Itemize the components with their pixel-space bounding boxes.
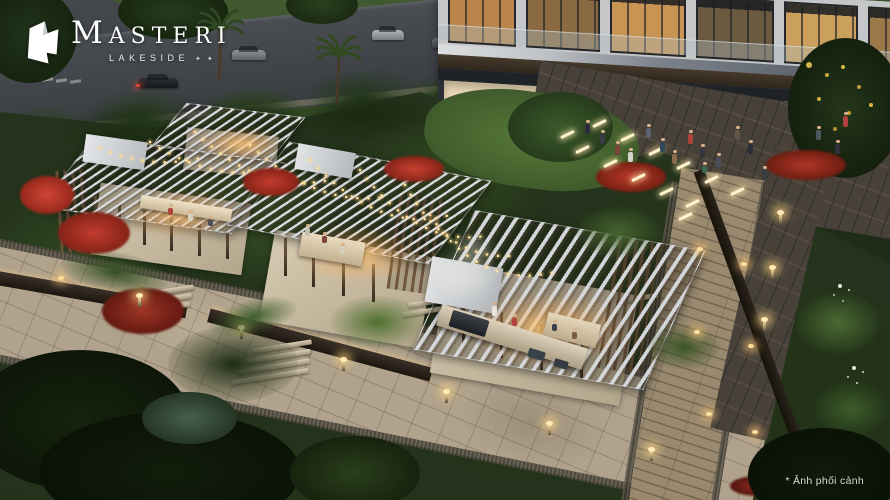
brand-logo: MASTERI LAKESIDE✦ ✦: [26, 18, 232, 64]
garden-shrub: [648, 324, 720, 370]
tropical-leaves: [290, 436, 420, 500]
planter-corner-light: [748, 344, 754, 348]
red-flower-bed: [766, 150, 846, 180]
pedestrian: [615, 141, 621, 155]
pedestrian: [700, 144, 706, 159]
bollard-light: [779, 213, 782, 224]
garden-shrub: [576, 206, 660, 258]
pergola-post: [284, 238, 287, 276]
planter-corner-light: [706, 412, 712, 416]
diner: [188, 210, 194, 220]
bollard-light: [650, 450, 653, 461]
pedestrian: [628, 148, 634, 162]
masteri-logo-mark: [26, 18, 62, 64]
pedestrian: [646, 124, 652, 138]
pedestrian: [816, 126, 822, 140]
bollard-light: [548, 424, 551, 435]
red-flower-bed: [20, 176, 74, 214]
pedestrian: [835, 140, 841, 154]
diner: [305, 224, 311, 235]
chef: [512, 314, 518, 326]
brand-subtitle: LAKESIDE✦ ✦: [109, 53, 232, 63]
bbq-smoke: [438, 258, 490, 294]
planter-corner-light: [694, 330, 700, 334]
pavilion-glow: [200, 128, 282, 160]
lawn-shrub: [508, 92, 613, 162]
pedestrian-child: [702, 162, 708, 172]
chef: [492, 302, 498, 316]
pedestrian-red-dress: [843, 112, 849, 128]
pedestrian: [762, 166, 768, 181]
planter-corner-light: [752, 430, 758, 434]
bollard-light: [445, 392, 448, 403]
pedestrian: [660, 138, 666, 153]
diner: [572, 328, 578, 338]
car-taillight: [136, 84, 140, 87]
pedestrian: [585, 120, 591, 134]
garden-shrub: [330, 296, 425, 348]
tree-blossoms: [806, 62, 812, 68]
pergola-post: [226, 230, 229, 259]
brand-name: MASTERI: [71, 18, 232, 52]
planter-corner-light: [741, 262, 747, 266]
diner: [168, 204, 174, 214]
garden-shrub: [796, 292, 880, 354]
bollard-light: [342, 360, 345, 371]
red-flower-bed: [243, 168, 299, 196]
white-flowers: [852, 366, 856, 370]
pedestrian: [716, 153, 722, 167]
bollard-light: [763, 320, 766, 331]
red-flower-bed: [58, 212, 130, 254]
white-flowers: [838, 284, 842, 288]
planter-corner-light: [697, 247, 703, 251]
hosta-leaves: [142, 392, 237, 444]
rendering-disclaimer: * Ảnh phối cảnh: [785, 475, 864, 487]
masteri-lakeside-rendering: MASTERI LAKESIDE✦ ✦ * Ảnh phối cảnh: [0, 0, 890, 500]
pedestrian: [688, 130, 694, 144]
red-flower-bed: [384, 156, 444, 182]
foreground-shrubs: [168, 326, 298, 402]
sparkle-icon: ✦ ✦: [195, 56, 215, 63]
car-dark: [138, 78, 178, 88]
pedestrian: [735, 126, 741, 140]
bbq-smoke: [458, 238, 490, 262]
red-flower-bed: [102, 288, 184, 334]
car-silver: [372, 30, 404, 40]
ground-light: [58, 276, 64, 280]
pedestrian: [600, 130, 606, 145]
pedestrian: [748, 140, 754, 154]
diner: [208, 216, 214, 225]
diner: [552, 320, 558, 330]
bollard-light: [771, 268, 774, 279]
diner: [340, 243, 346, 253]
pedestrian: [672, 150, 678, 164]
diner: [322, 232, 328, 242]
bollard-light: [138, 296, 141, 307]
